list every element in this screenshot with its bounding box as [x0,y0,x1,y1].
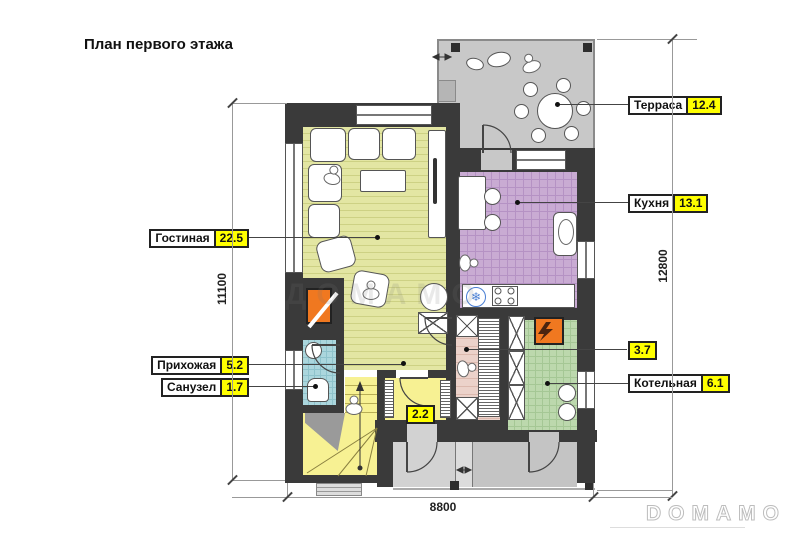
chimney-block [438,80,456,102]
wardrobe-cabinet [456,397,478,420]
bath-sink [305,342,322,359]
dim-ext [232,103,287,104]
sofa-seat [310,128,346,162]
label-hallway-area: 5.2 [222,356,249,375]
terrace-chair [531,128,546,143]
window-bathroom [285,350,303,390]
dim-text-right: 12800 [656,236,670,296]
dim-line-left [232,103,233,480]
label-kitchen-name: Кухня [628,194,675,213]
boiler-cabinet [508,351,525,385]
window-kitchen-terrace [516,150,566,170]
coffee-table [360,170,406,192]
label-wardrobe: 3.7 [628,341,657,360]
window-boiler [577,371,595,409]
label-vestibule: 2.2 [406,405,435,424]
terrace-door-gap [481,150,512,170]
sofa-seat [348,128,380,160]
label-bathroom-name: Санузел [161,378,222,397]
leader-wardrobe [468,349,627,350]
vestibule-wardrobe [440,380,451,418]
dim-line-bottom [232,497,672,498]
terrace-post [583,43,592,52]
dim-ext [232,480,285,481]
watermark-underline [610,527,745,528]
porch-edge-line [393,488,595,490]
wardrobe-cabinet [456,315,478,337]
leader-dot-hallway [401,361,406,366]
terrace-chair [564,126,579,141]
sink-basin [558,219,574,245]
tv-cabinet [428,130,446,238]
watermark-logo: DOMAMO [646,502,786,526]
label-vestibule-area: 2.2 [406,405,435,424]
boiler-cabinet [508,316,525,351]
wall-bath-right [336,332,344,413]
page-title: План первого этажа [84,36,233,53]
toilet [307,378,329,402]
window-kitchen-right [577,241,595,279]
label-bathroom-area: 1.7 [222,378,249,397]
porch-left-floor [393,442,455,487]
label-kitchen-area: 13.1 [675,194,708,213]
boiler-tank [558,384,576,402]
leader-terrace [559,104,628,105]
kitchen-chair [484,188,501,205]
wall-porch-left-pier [377,420,393,487]
front-door-gap [407,424,437,442]
wall-front-left [375,420,500,442]
hall-cabinet [418,312,448,334]
leader-kitchen [519,202,628,203]
wall-outer-bottom [303,475,377,483]
label-boiler-area: 6.1 [703,374,730,393]
leader-bathroom [249,386,316,387]
leader-dot-terrace [555,102,560,107]
leader-dot-kitchen [515,200,520,205]
sofa-seat [308,164,342,202]
sofa-seat [308,204,340,238]
wardrobe-closet [478,318,500,417]
porch-right-floor [473,442,577,487]
label-hallway: Прихожая5.2 [151,356,249,375]
label-terrace-area: 12.4 [688,96,721,115]
porch-post [450,481,459,490]
dim-line-right [672,39,673,497]
dim-text-bottom: 8800 [400,500,486,514]
terrace-post [451,43,460,52]
dim-ext [597,39,697,40]
kitchen-chair [484,214,501,231]
label-kitchen: Кухня13.1 [628,194,708,213]
dim-ext [597,490,672,491]
dim-text-left: 11100 [215,259,229,319]
leader-dot-living [375,235,380,240]
terrace-table [537,93,573,129]
sofa-seat [382,128,416,160]
kitchen-table [458,176,486,230]
boiler-door-gap [529,432,559,442]
boiler-cabinet [508,385,525,420]
watermark-center: ДОМАМО [285,278,565,312]
terrace-chair [514,104,529,119]
window-living-left [285,143,303,273]
boiler-tank [558,403,576,421]
floor-plan: План первого этажа [0,0,800,533]
terrace-chair [556,78,571,93]
entry-steps [316,483,362,496]
label-terrace-name: Терраса [628,96,688,115]
label-terrace: Терраса12.4 [628,96,722,115]
terrace-chair [523,82,538,97]
label-bathroom: Санузел1.7 [161,378,249,397]
vestibule-shelf [384,380,394,418]
wall-bath-bottom [303,405,344,413]
leader-dot-bathroom [313,384,318,389]
leader-dot-wardrobe [464,347,469,352]
label-living-name: Гостиная [149,229,215,248]
label-hallway-name: Прихожая [151,356,222,375]
label-boiler: Котельная6.1 [628,374,730,393]
leader-hallway [249,364,404,365]
leader-boiler [549,383,628,384]
window-living-top [356,105,432,125]
boiler-unit [534,317,564,345]
leader-dot-boiler [545,381,550,386]
label-wardrobe-area: 3.7 [628,341,657,360]
wall-wardrobe-boiler [500,310,508,442]
tv [433,158,437,204]
leader-living [249,237,378,238]
label-boiler-name: Котельная [628,374,703,393]
label-living: Гостиная22.5 [149,229,249,248]
